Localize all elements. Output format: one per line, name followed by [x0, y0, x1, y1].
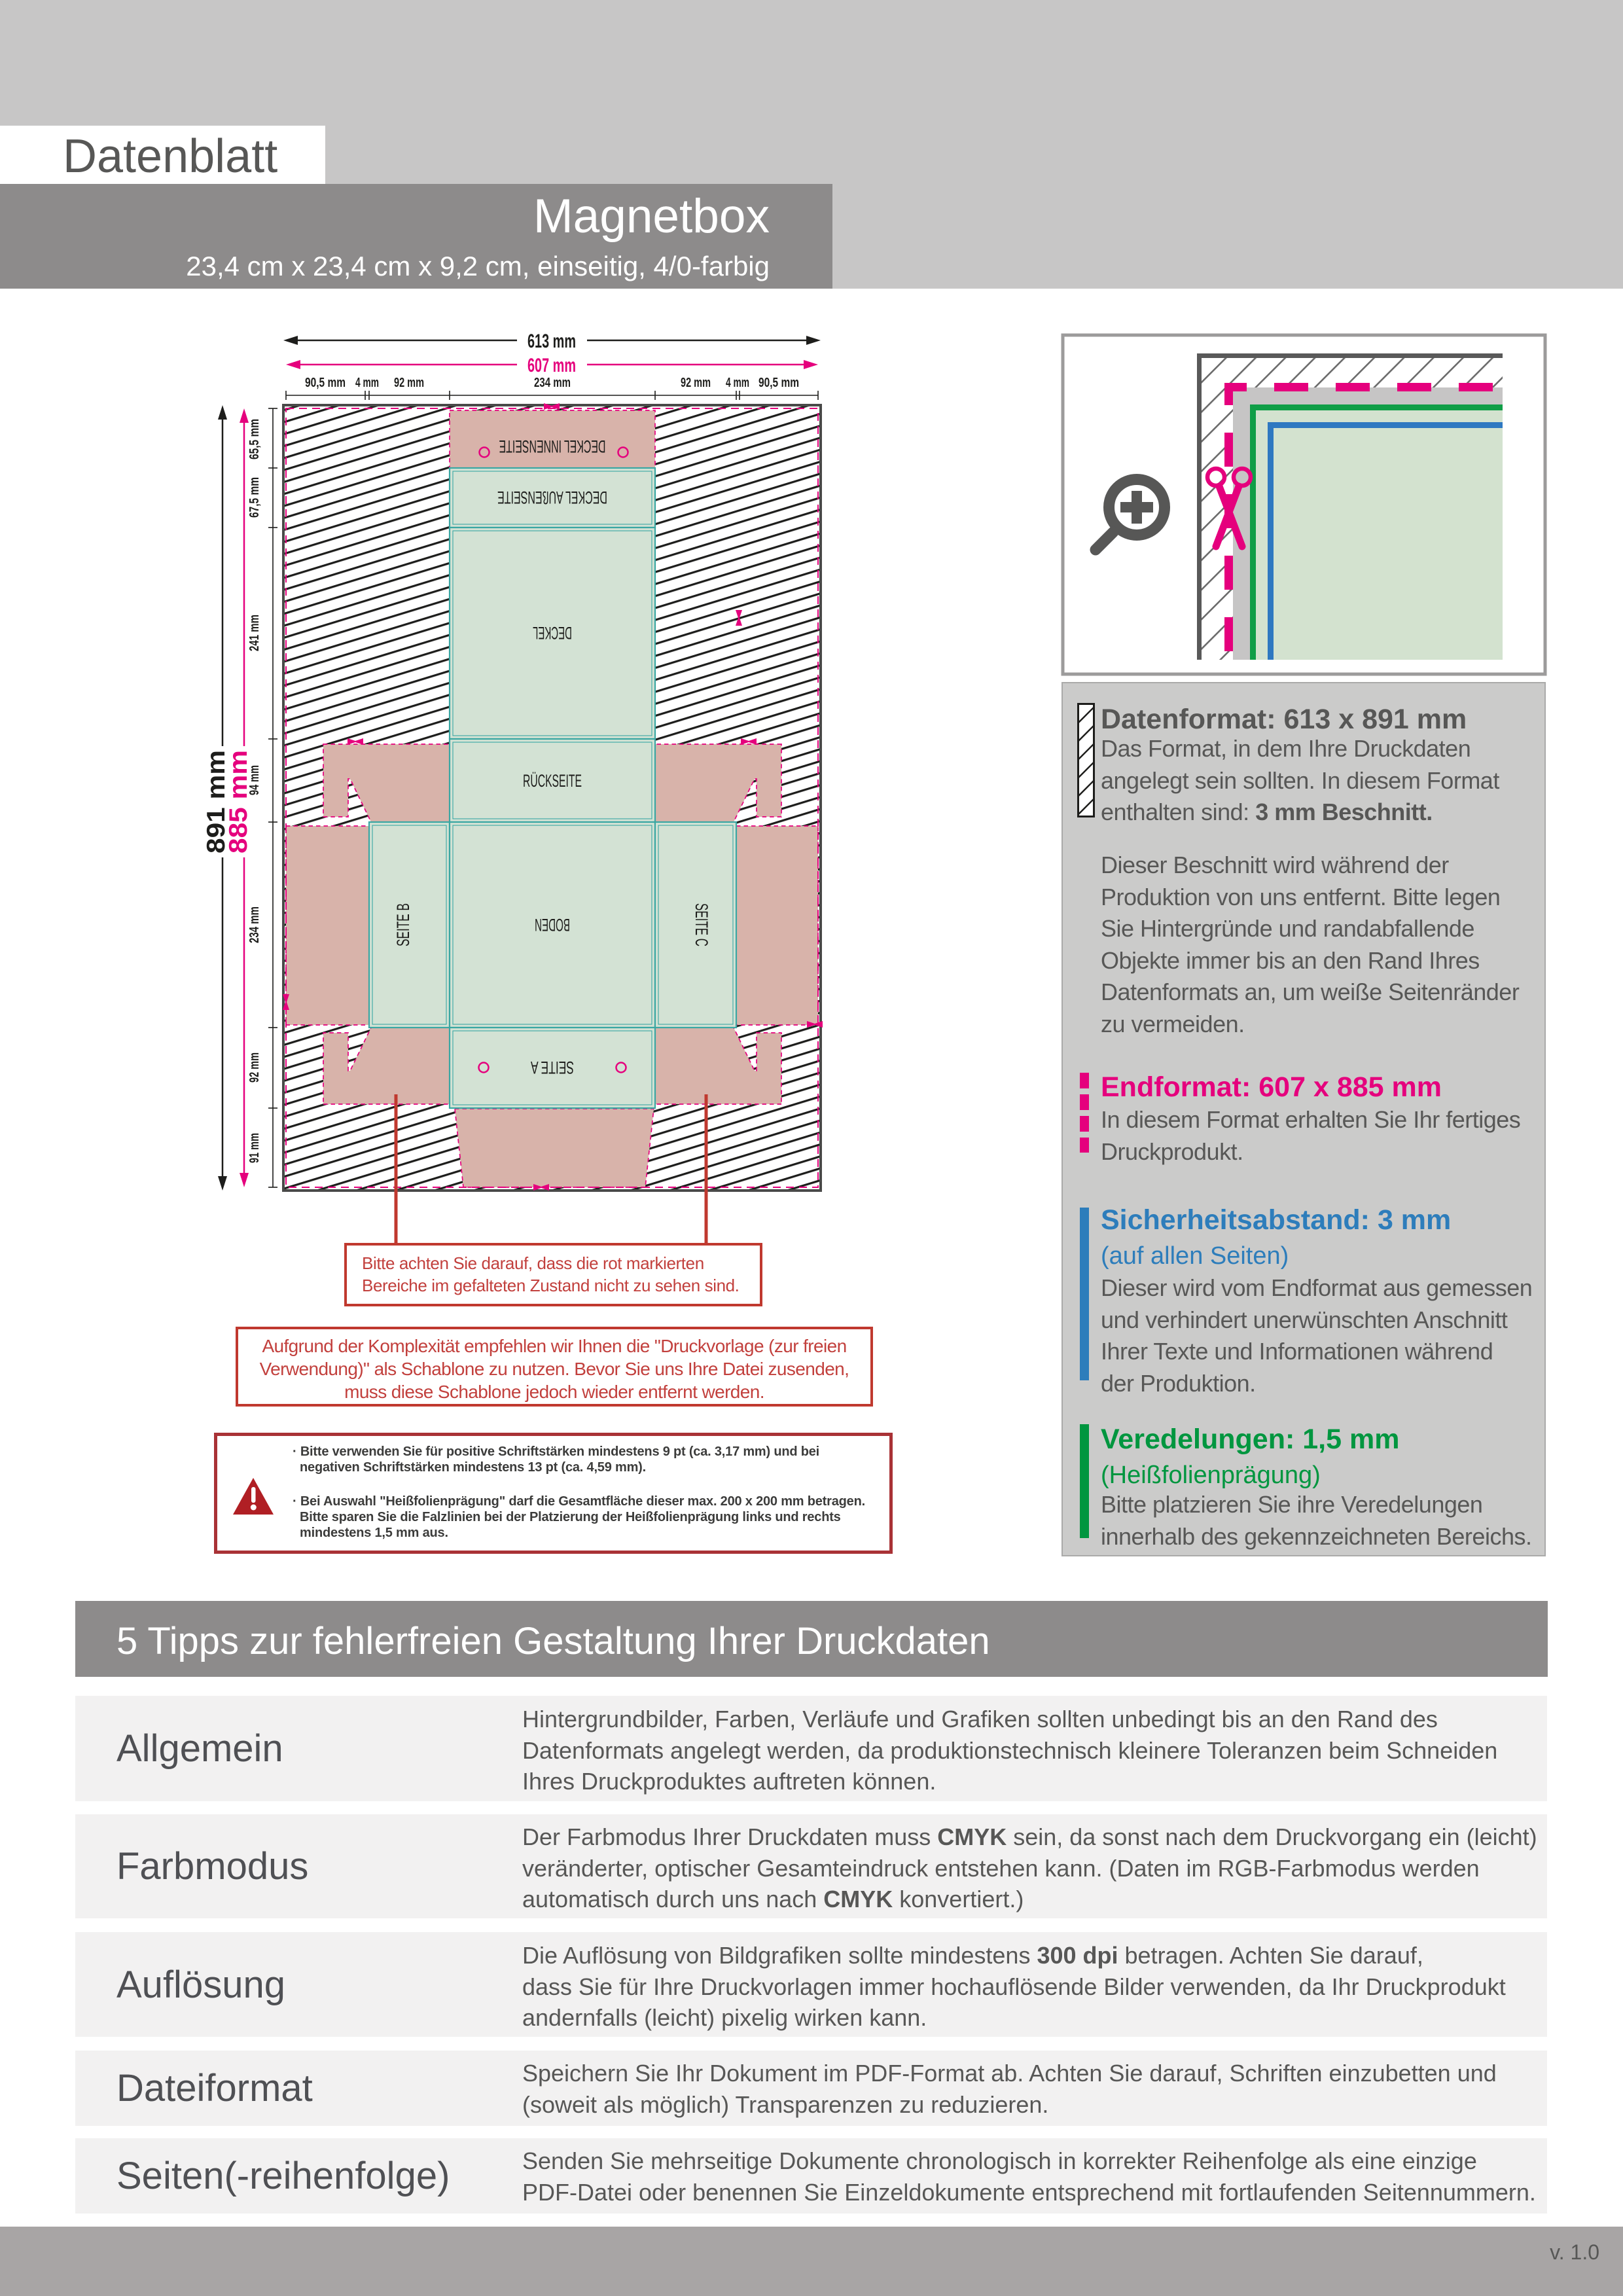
svg-text:92 mm: 92 mm: [681, 376, 711, 390]
svg-text:94 mm: 94 mm: [247, 765, 262, 795]
svg-text:SEITE C: SEITE C: [692, 903, 711, 946]
svg-text:4 mm: 4 mm: [726, 376, 749, 390]
svg-text:90,5 mm: 90,5 mm: [305, 376, 346, 390]
svg-text:607 mm: 607 mm: [527, 355, 576, 376]
svg-text:DECKEL AUßENSEITE: DECKEL AUßENSEITE: [497, 488, 607, 507]
svg-text:DECKEL: DECKEL: [533, 623, 572, 643]
svg-text:90,5 mm: 90,5 mm: [758, 376, 799, 390]
svg-text:BODEN: BODEN: [535, 915, 570, 935]
svg-text:67,5 mm: 67,5 mm: [247, 477, 262, 518]
svg-text:92 mm: 92 mm: [247, 1052, 262, 1083]
svg-text:DECKEL INNENSEITE: DECKEL INNENSEITE: [499, 437, 606, 456]
svg-text:91 mm: 91 mm: [247, 1133, 262, 1163]
svg-text:SEITE B: SEITE B: [393, 903, 413, 946]
svg-text:234 mm: 234 mm: [247, 906, 262, 943]
svg-text:92 mm: 92 mm: [394, 376, 424, 390]
svg-text:241 mm: 241 mm: [247, 615, 262, 651]
svg-text:613 mm: 613 mm: [527, 331, 576, 352]
svg-text:4 mm: 4 mm: [355, 376, 379, 390]
svg-text:65,5 mm: 65,5 mm: [247, 419, 262, 459]
svg-text:SEITE A: SEITE A: [531, 1058, 574, 1077]
svg-text:234 mm: 234 mm: [534, 376, 571, 390]
svg-text:RÜCKSEITE: RÜCKSEITE: [523, 771, 582, 791]
